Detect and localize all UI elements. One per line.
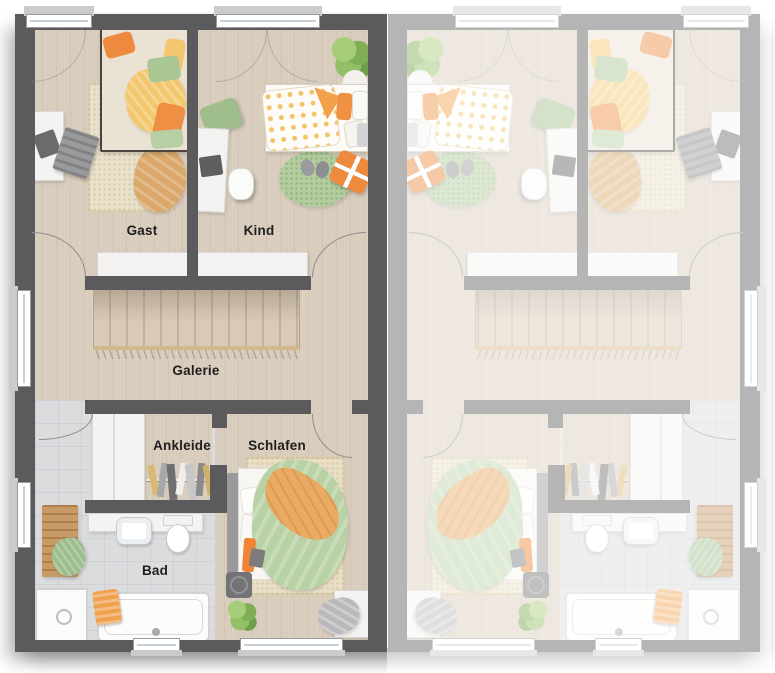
- floorplan-canvas: Gast Kind Galerie Ankleide Schlafen Bad: [0, 0, 775, 673]
- fade-overlay: [387, 0, 771, 673]
- unit-right-mirrored: [0, 0, 775, 673]
